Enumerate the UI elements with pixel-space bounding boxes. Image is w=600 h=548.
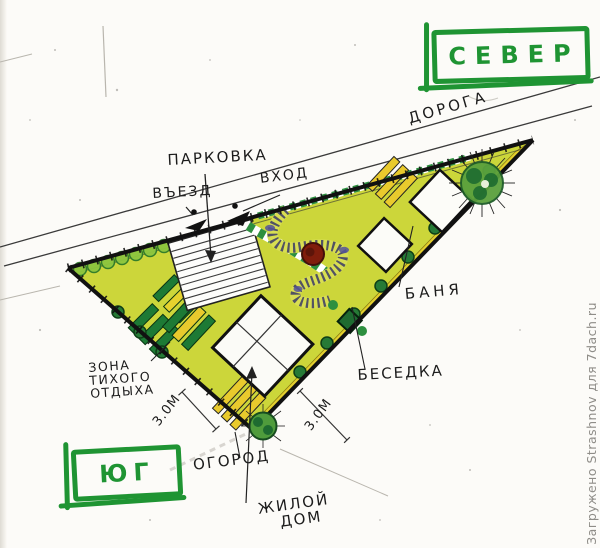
compass-south-label: ЮГ <box>99 458 156 489</box>
label-quiet-zone: ЗОНА ТИХОГО ОТДЫХА <box>88 357 155 400</box>
drivein-gate-dot-icon <box>191 209 197 215</box>
plan-sheet: ДОРОГА ПАРКОВКА ВХОД ВЪЕЗД БАНЯ БЕСЕДКА … <box>0 0 600 548</box>
label-drive-in: ВЪЕЗД <box>152 183 213 202</box>
red-flowerbed-center <box>306 248 315 257</box>
watermark-text: Загружено Strashnov для 7dach.ru <box>584 302 599 545</box>
compass-south-box: ЮГ <box>71 444 184 502</box>
compass-north-box: СЕВЕР <box>431 26 590 84</box>
compass-north-label: СЕВЕР <box>448 39 580 70</box>
entrance-gate-dot-icon <box>232 203 238 209</box>
